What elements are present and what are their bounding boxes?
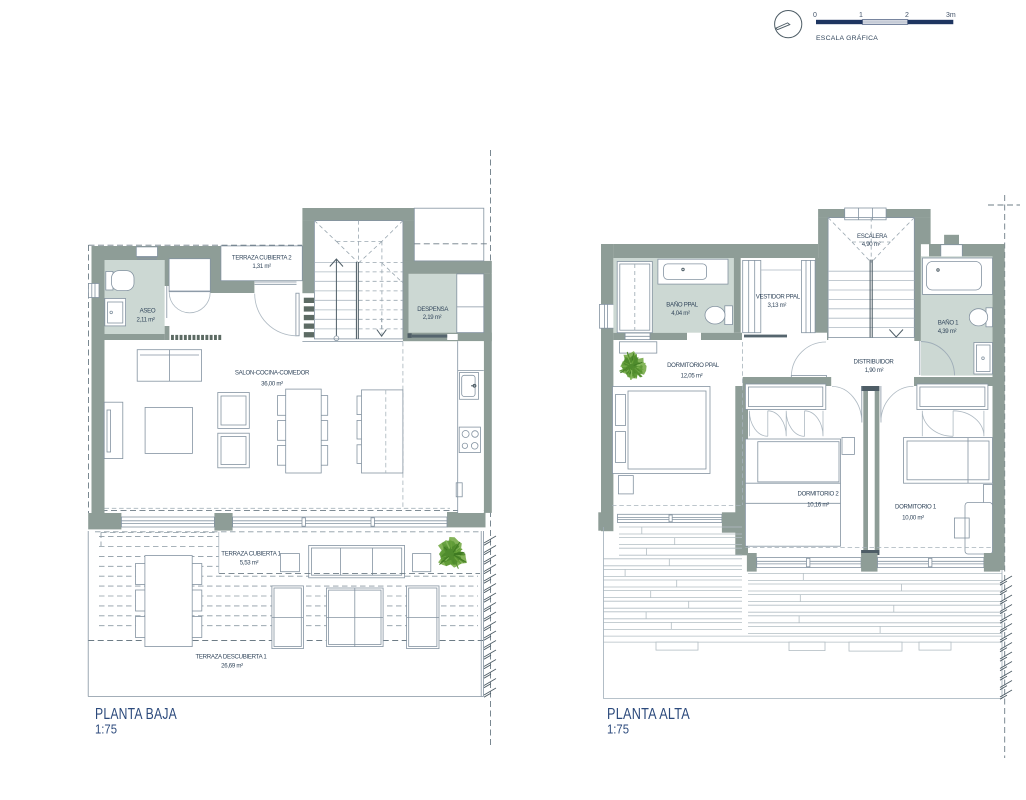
- svg-text:ESCALERA: ESCALERA: [857, 233, 888, 240]
- svg-text:4,90 m²: 4,90 m²: [862, 241, 881, 248]
- svg-text:TERRAZA CUBIERTA 2: TERRAZA CUBIERTA 2: [232, 255, 292, 262]
- svg-text:3,13 m²: 3,13 m²: [768, 302, 787, 309]
- svg-text:SALON-COCINA-COMEDOR: SALON-COCINA-COMEDOR: [235, 370, 310, 377]
- svg-text:BAÑO 1: BAÑO 1: [938, 320, 959, 327]
- svg-text:4,39 m²: 4,39 m²: [938, 328, 957, 335]
- svg-text:PLANTA BAJA: PLANTA BAJA: [95, 706, 177, 723]
- svg-text:1:75: 1:75: [95, 722, 117, 737]
- svg-text:VESTIDOR PPAL: VESTIDOR PPAL: [756, 294, 801, 301]
- svg-text:10,00 m²: 10,00 m²: [902, 515, 924, 522]
- svg-text:ESCALA GRÁFICA: ESCALA GRÁFICA: [816, 33, 878, 42]
- svg-text:0: 0: [813, 12, 817, 19]
- svg-text:DESPENSA: DESPENSA: [417, 306, 449, 313]
- svg-text:5,53 m²: 5,53 m²: [240, 560, 259, 567]
- svg-text:2,19 m²: 2,19 m²: [423, 314, 442, 321]
- svg-text:26,69 m²: 26,69 m²: [221, 663, 243, 670]
- svg-text:TERRAZA DESCUBIERTA 1: TERRAZA DESCUBIERTA 1: [195, 654, 267, 661]
- svg-text:TERRAZA CUBIERTA 1: TERRAZA CUBIERTA 1: [221, 551, 281, 558]
- svg-text:12,05 m²: 12,05 m²: [681, 373, 703, 380]
- svg-text:1,31 m²: 1,31 m²: [252, 263, 271, 270]
- svg-text:ASEO: ASEO: [140, 308, 156, 315]
- svg-text:4,04 m²: 4,04 m²: [671, 310, 690, 317]
- svg-text:10,16 m²: 10,16 m²: [807, 502, 829, 509]
- svg-text:36,00 m²: 36,00 m²: [261, 381, 283, 388]
- svg-text:DORMITORIO 1: DORMITORIO 1: [895, 504, 937, 511]
- svg-text:1,90 m²: 1,90 m²: [865, 367, 884, 374]
- svg-text:PLANTA ALTA: PLANTA ALTA: [607, 706, 690, 723]
- svg-text:DORMITORIO 2: DORMITORIO 2: [798, 491, 840, 498]
- svg-text:1: 1: [859, 12, 863, 19]
- svg-text:BAÑO PPAL: BAÑO PPAL: [666, 302, 698, 309]
- svg-text:2,11 m²: 2,11 m²: [137, 317, 155, 324]
- svg-text:2: 2: [905, 12, 909, 19]
- svg-text:1:75: 1:75: [607, 722, 629, 737]
- svg-text:DORMITORIO PPAL: DORMITORIO PPAL: [667, 362, 720, 369]
- svg-text:3m: 3m: [946, 12, 956, 19]
- svg-text:DISTRIBUIDOR: DISTRIBUIDOR: [853, 359, 894, 366]
